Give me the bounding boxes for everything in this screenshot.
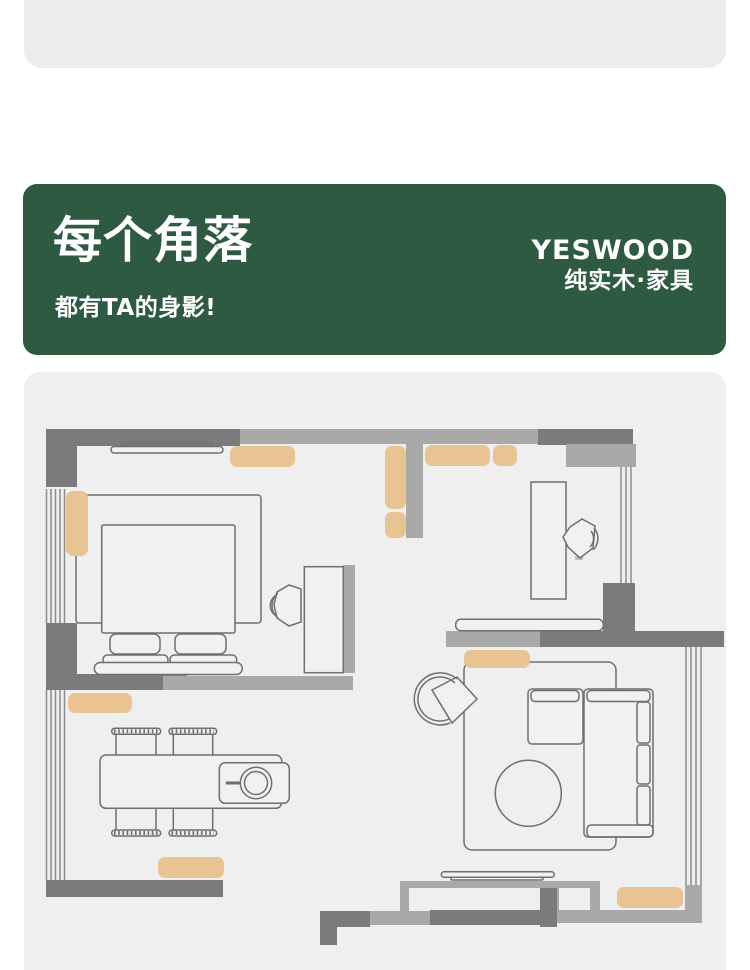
highlight-hall-cabinet-small: [385, 512, 406, 538]
tv-media-wall-cutout-right: [559, 888, 590, 912]
window-study-right: [621, 467, 631, 583]
wall-top-right-dark: [538, 429, 633, 445]
highlight-study-shelf-long: [425, 445, 490, 466]
dining-chair-top-right: [169, 728, 217, 755]
wall-bottom-step: [320, 927, 337, 945]
walls: [46, 429, 724, 945]
wall-bottom-left: [46, 880, 223, 897]
brand-name: YESWOOD: [531, 236, 694, 266]
sofa-body: [584, 689, 653, 837]
brand-tagline: 纯实木·家具: [531, 266, 694, 296]
page: 每个角落 都有TA的身影! YESWOOD 纯实木·家具: [0, 0, 750, 970]
tv-icon: [441, 872, 554, 880]
wall-corner-topright: [566, 444, 636, 467]
room-living: [414, 662, 653, 880]
banner-subtitle: 都有TA的身影!: [55, 288, 216, 322]
banner-title: 每个角落: [53, 214, 253, 268]
wall-mid-dark: [540, 631, 724, 647]
wall-corner-study: [603, 583, 635, 632]
bed-footboard: [94, 663, 242, 675]
armchair-icon: [414, 673, 477, 725]
sofa-chaise: [528, 689, 583, 744]
room-bedroom: [76, 443, 343, 675]
highlight-study-shelf-short: [493, 445, 517, 466]
bed-mattress: [102, 525, 235, 633]
floorplan-svg: [24, 372, 726, 970]
window-bedroom-left: [47, 489, 65, 623]
wall-bottom-medium-a: [370, 911, 430, 925]
highlight-dining-sideboard-top: [68, 693, 132, 713]
study-chair-icon: [563, 519, 598, 560]
highlight-living-cabinet-top: [464, 650, 530, 668]
wall-bottom-right-block: [685, 885, 702, 923]
bed-pillow-left: [110, 634, 160, 654]
previous-section-remnant: [24, 0, 726, 68]
hall-console-table: [456, 619, 604, 630]
bedroom-desk: [304, 567, 343, 673]
room-study: [456, 482, 604, 631]
wall-hallway-vertical: [406, 443, 423, 538]
green-banner: 每个角落 都有TA的身影! YESWOOD 纯实木·家具: [23, 184, 726, 355]
dining-chair-top-left: [112, 728, 161, 755]
curtain-shelf: [111, 447, 223, 454]
dining-chair-bottom-left: [112, 808, 161, 836]
wall-top-medium: [240, 429, 538, 444]
highlight-bedroom-shelf: [230, 446, 295, 467]
highlight-living-cabinet-bottom: [617, 887, 683, 908]
floorplan-panel: [24, 372, 726, 970]
tv-media-wall-cutout-left: [409, 888, 540, 912]
bedroom-chair-icon: [270, 585, 301, 626]
brand-block: YESWOOD 纯实木·家具: [531, 236, 694, 296]
dining-chair-bottom-right: [169, 808, 217, 836]
wall-bedroom-bottom-medium: [163, 676, 353, 690]
wall-strip-bedroom-desk: [343, 565, 355, 673]
study-desk: [531, 482, 566, 599]
bed-pillow-right: [175, 634, 226, 654]
wall-bottom-medium-b: [557, 910, 702, 923]
wall-left-upper: [46, 429, 77, 487]
highlight-dining-sideboard-bottom: [158, 857, 224, 878]
l-shaped-sofa: [528, 689, 653, 837]
wall-mid-medium: [446, 631, 540, 647]
wall-bottom-dark-a: [320, 911, 370, 927]
round-rug: [495, 760, 561, 826]
highchair: [219, 763, 289, 804]
highlight-hall-cabinet-tall: [385, 446, 406, 509]
room-dining: [100, 728, 289, 836]
window-dining-left: [47, 690, 65, 880]
highlight-bedroom-cabinet: [66, 491, 88, 556]
window-living-right: [686, 647, 701, 885]
wall-bottom-dark-b: [430, 910, 557, 925]
